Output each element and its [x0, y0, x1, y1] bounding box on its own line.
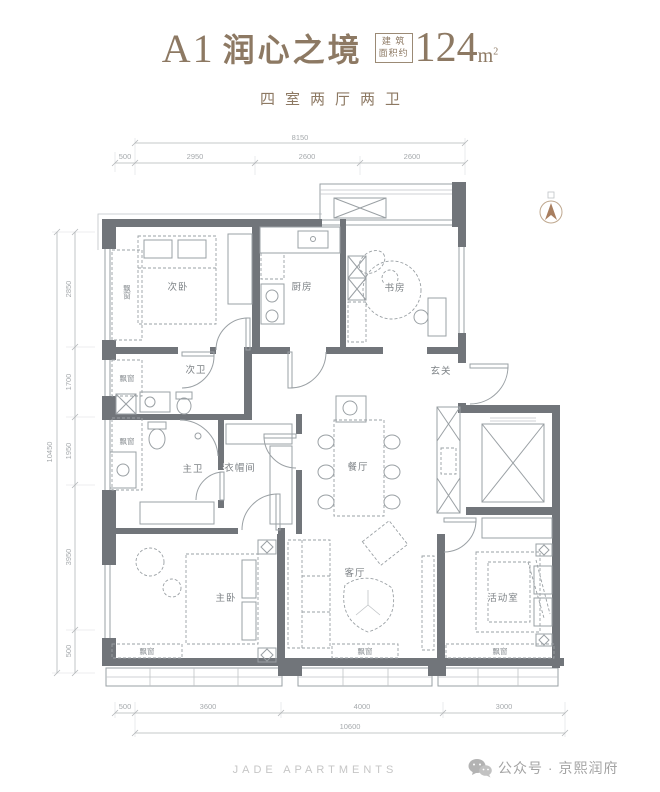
bay-window-label: 飘窗	[122, 284, 131, 301]
room-label-closet: 衣帽间	[224, 462, 256, 474]
dim-top-overall: 8150	[292, 133, 309, 142]
dim-left-seg3: 3950	[64, 549, 73, 566]
wechat-badge: 公众号 · 京熙润府	[468, 758, 618, 778]
area-box-line2: 面积约	[379, 48, 409, 60]
master-bath-fixtures	[110, 420, 218, 488]
subtitle: 四室两厅两卫	[0, 88, 660, 109]
room-label-activity: 活动室	[487, 592, 519, 604]
dim-left-seg2: 1950	[64, 443, 73, 460]
compass-icon	[540, 192, 562, 223]
area-box: 建 筑 面积约	[375, 33, 413, 62]
door-entry	[470, 364, 508, 404]
floorplan-page: { "header": { "unit": "A1", "name": "润心之…	[0, 0, 660, 792]
elevator-shaft	[437, 407, 544, 513]
second-bath-fixtures	[116, 392, 192, 414]
door-master-bedroom	[242, 494, 280, 530]
dining-set	[318, 396, 400, 516]
plan-header: A1 润心之境 建 筑 面积约 124 m2 四室两厅两卫	[0, 24, 660, 109]
dim-top-seg0: 500	[119, 152, 132, 161]
room-label-living: 客厅	[344, 567, 365, 579]
dim-left-seg1: 1700	[64, 374, 73, 391]
dim-left-seg4: 500	[64, 645, 73, 658]
bay-window-label: 飘窗	[493, 646, 508, 656]
floor-plan: 8150 500 2950 2600 2600 10450 2850 1700 …	[0, 130, 660, 745]
brand-text: JADE APARTMENTS	[190, 764, 440, 776]
door-activity-room	[444, 518, 476, 552]
dim-top-seg2: 2600	[299, 152, 316, 161]
dim-bottom-seg0: 500	[119, 702, 132, 711]
room-label-second-bedroom: 次卧	[167, 281, 188, 293]
bay-window-label: 飘窗	[140, 646, 155, 656]
bay-window-label: 飘窗	[120, 436, 135, 446]
wechat-icon	[468, 758, 492, 778]
area-box-line1: 建 筑	[379, 36, 409, 48]
dim-bottom-overall: 10600	[340, 722, 361, 731]
unit-code: A1	[162, 25, 215, 72]
dim-top-seg1: 2950	[187, 152, 204, 161]
master-bedroom-furniture	[136, 502, 276, 662]
room-label-foyer: 玄关	[430, 365, 451, 377]
area-unit-sup: 2	[493, 46, 498, 57]
room-label-study: 书房	[384, 282, 405, 294]
room-label-second-bath: 次卫	[185, 364, 206, 376]
dim-top-seg3: 2600	[404, 152, 421, 161]
kitchen-counter	[260, 227, 340, 324]
dim-left-overall: 10450	[45, 442, 54, 463]
dim-left-seg0: 2850	[64, 281, 73, 298]
area-unit: m2	[478, 45, 499, 72]
room-label-master-bedroom: 主卧	[215, 592, 236, 604]
living-room-furniture	[288, 521, 434, 650]
room-label-dining: 餐厅	[347, 461, 368, 473]
plan-title: 润心之境	[223, 25, 363, 71]
door-master-bath	[196, 472, 224, 500]
dim-bottom-seg2: 4000	[354, 702, 371, 711]
bay-window-label: 飘窗	[120, 373, 135, 383]
dim-bottom-seg3: 3000	[496, 702, 513, 711]
door-second-bedroom	[216, 318, 250, 350]
closet-wardrobes	[226, 424, 292, 524]
area-value: 124	[415, 24, 478, 72]
bay-window-label: 飘窗	[358, 646, 373, 656]
title-row: A1 润心之境 建 筑 面积约 124 m2	[0, 24, 660, 72]
dim-bottom-seg1: 3600	[200, 702, 217, 711]
door-closet	[264, 434, 296, 468]
room-label-master-bath: 主卫	[182, 463, 203, 475]
wechat-label: 公众号 · 京熙润府	[498, 758, 618, 778]
activity-room-furniture	[476, 518, 552, 646]
door-kitchen	[288, 352, 326, 388]
room-label-kitchen: 厨房	[291, 281, 312, 293]
equipment-platform	[320, 182, 466, 222]
bed-second-bedroom	[138, 236, 216, 324]
wardrobe-second-bedroom	[228, 234, 252, 304]
